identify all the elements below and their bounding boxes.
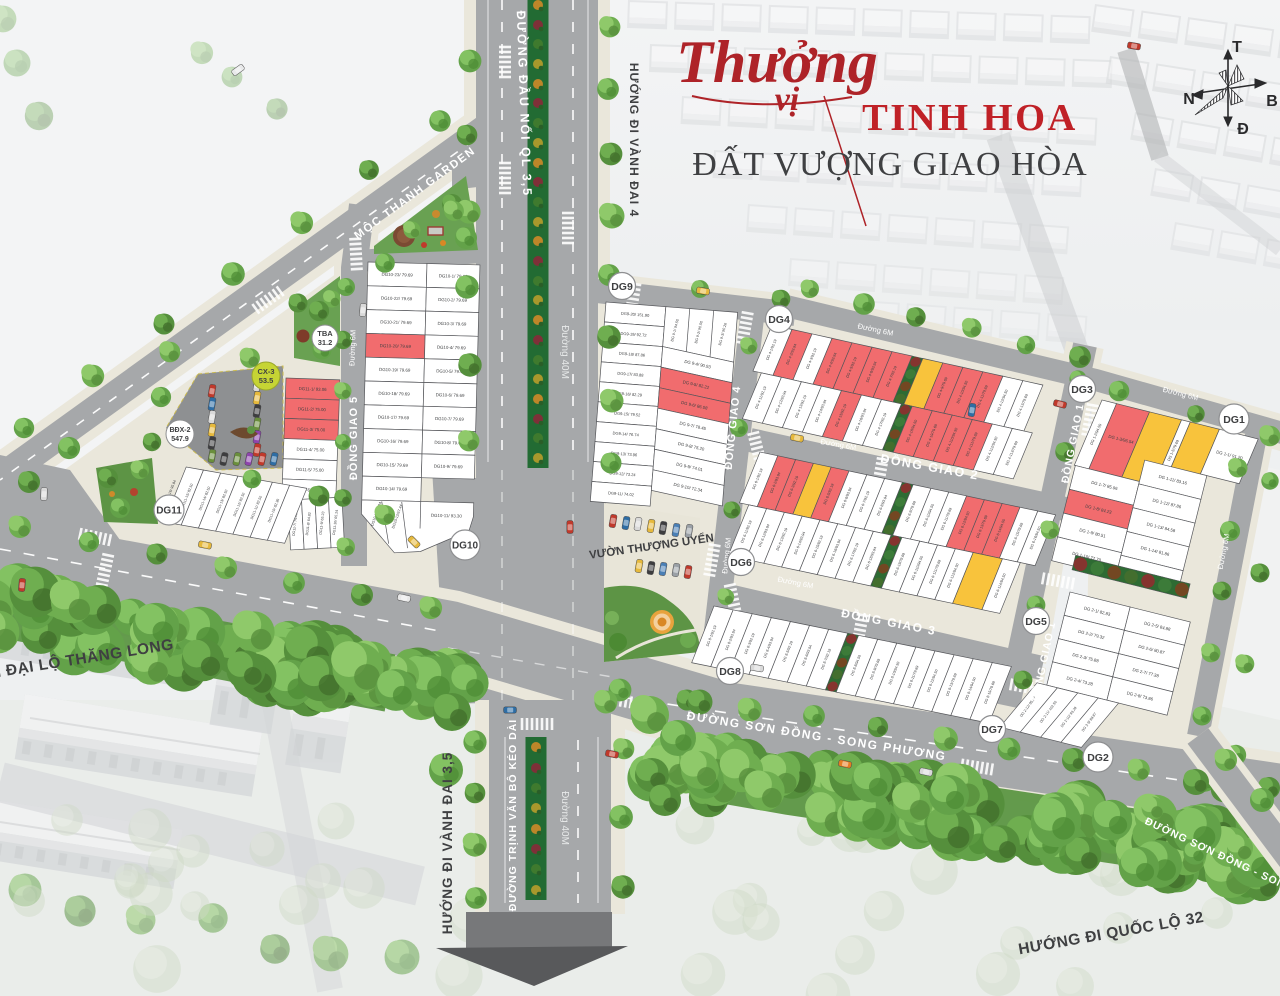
svg-text:DG8: DG8 <box>719 666 741 678</box>
svg-text:TBA: TBA <box>317 329 333 338</box>
svg-text:CX-3: CX-3 <box>257 367 274 376</box>
svg-text:DG10-4/ 79.69: DG10-4/ 79.69 <box>437 345 466 351</box>
svg-text:Đường 40M: Đường 40M <box>559 791 570 845</box>
svg-text:B: B <box>1266 93 1278 110</box>
svg-text:DG10-9/ 79.69: DG10-9/ 79.69 <box>434 464 463 470</box>
svg-text:DG2: DG2 <box>1087 752 1109 764</box>
svg-text:DG10: DG10 <box>452 541 479 552</box>
svg-text:ĐƯỜNG TRỊNH VĂN BÔ KÉO DÀI: ĐƯỜNG TRỊNH VĂN BÔ KÉO DÀI <box>506 719 519 911</box>
svg-text:Đường 40M: Đường 40M <box>559 325 570 379</box>
svg-text:DG10-14/ 79.69: DG10-14/ 79.69 <box>376 486 408 492</box>
svg-text:53.5: 53.5 <box>259 376 274 385</box>
svg-text:T: T <box>1232 39 1242 56</box>
svg-text:DG7: DG7 <box>981 724 1003 736</box>
svg-text:DG11-4/ 75.00: DG11-4/ 75.00 <box>296 447 325 453</box>
svg-text:DG10-21/ 79.69: DG10-21/ 79.69 <box>380 319 412 325</box>
svg-text:ĐẤT VƯỢNG GIAO HÒA: ĐẤT VƯỢNG GIAO HÒA <box>692 145 1087 183</box>
svg-text:DG10-17/ 79.69: DG10-17/ 79.69 <box>378 415 410 421</box>
svg-text:DG6: DG6 <box>730 557 752 569</box>
svg-text:TINH HOA: TINH HOA <box>862 97 1078 139</box>
svg-text:547.9: 547.9 <box>171 436 189 443</box>
svg-text:Đ: Đ <box>1237 121 1249 138</box>
svg-text:ĐỒNG GIAO 5: ĐỒNG GIAO 5 <box>347 396 360 480</box>
svg-text:DG10-22/ 79.69: DG10-22/ 79.69 <box>381 296 413 302</box>
svg-text:DG11-5/ 75.00: DG11-5/ 75.00 <box>296 467 325 473</box>
svg-text:DG10-18/ 79.69: DG10-18/ 79.69 <box>378 391 410 397</box>
svg-text:DG3: DG3 <box>1071 384 1093 396</box>
svg-text:DG5: DG5 <box>1025 616 1047 628</box>
svg-text:DG10-6/ 79.69: DG10-6/ 79.69 <box>436 392 465 398</box>
svg-text:DG11-2/ 75.00: DG11-2/ 75.00 <box>298 406 327 412</box>
svg-text:Đường 6M: Đường 6M <box>347 330 357 366</box>
svg-text:N: N <box>1183 91 1195 108</box>
svg-text:DG10-3/ 79.69: DG10-3/ 79.69 <box>437 321 466 327</box>
svg-text:DG4: DG4 <box>768 314 790 326</box>
svg-text:DG1: DG1 <box>1223 414 1245 426</box>
svg-text:DG10-7/ 79.69: DG10-7/ 79.69 <box>435 416 464 422</box>
svg-text:DG11-1/ 93.06: DG11-1/ 93.06 <box>299 386 328 392</box>
svg-text:DG10-16/ 79.69: DG10-16/ 79.69 <box>377 438 409 444</box>
svg-text:DG11-3/ 75.00: DG11-3/ 75.00 <box>297 426 326 432</box>
svg-text:HƯỚNG ĐI VÀNH ĐAI 4: HƯỚNG ĐI VÀNH ĐAI 4 <box>627 63 642 218</box>
svg-text:BĐX-2: BĐX-2 <box>169 427 190 434</box>
svg-text:DG10-19/ 79.69: DG10-19/ 79.69 <box>379 367 411 373</box>
svg-text:DG10-20/ 79.69: DG10-20/ 79.69 <box>380 343 412 349</box>
svg-text:DG11: DG11 <box>156 506 182 517</box>
svg-text:DG10-11/ 93.30: DG10-11/ 93.30 <box>431 513 463 519</box>
svg-text:DG9: DG9 <box>611 281 633 293</box>
svg-text:31.2: 31.2 <box>318 338 333 347</box>
svg-text:DG10-15/ 79.69: DG10-15/ 79.69 <box>377 462 409 468</box>
svg-text:HƯỚNG ĐI VÀNH ĐAI 3,5: HƯỚNG ĐI VÀNH ĐAI 3,5 <box>440 752 455 935</box>
svg-text:vị: vị <box>775 81 800 118</box>
